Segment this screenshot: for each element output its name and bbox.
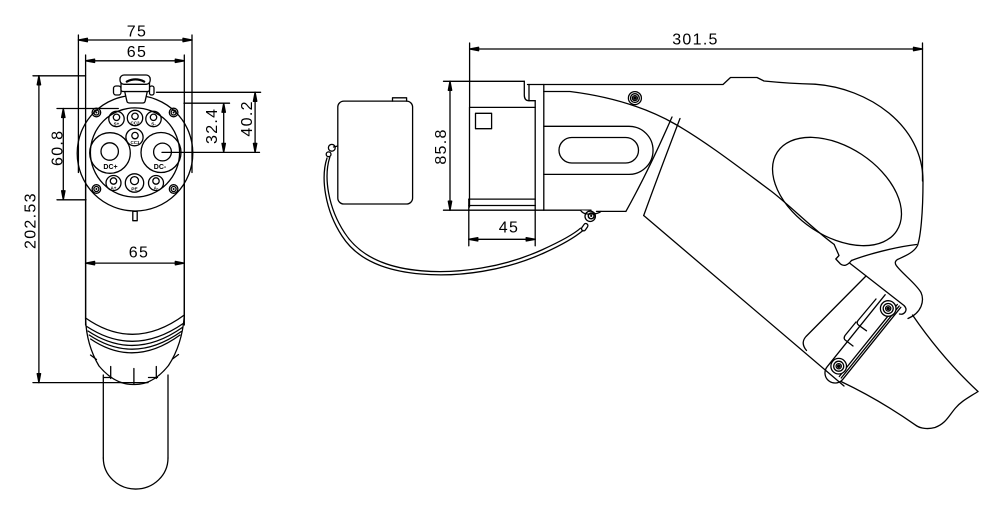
svg-text:32.4: 32.4 bbox=[204, 108, 221, 144]
svg-text:S-: S- bbox=[151, 122, 156, 127]
svg-text:PE: PE bbox=[131, 186, 138, 192]
svg-text:65: 65 bbox=[127, 44, 147, 61]
svg-text:60.8: 60.8 bbox=[50, 130, 67, 166]
svg-text:S+: S+ bbox=[114, 122, 120, 127]
svg-text:A-: A- bbox=[154, 185, 159, 190]
svg-text:CC2: CC2 bbox=[130, 121, 139, 126]
svg-text:40.2: 40.2 bbox=[239, 100, 256, 136]
svg-text:DC-: DC- bbox=[154, 164, 167, 171]
svg-text:75: 75 bbox=[127, 24, 147, 41]
svg-text:65: 65 bbox=[129, 245, 149, 262]
svg-text:45: 45 bbox=[499, 220, 519, 237]
svg-text:85.8: 85.8 bbox=[433, 128, 450, 164]
svg-text:DC+: DC+ bbox=[103, 164, 117, 171]
svg-text:202.53: 202.53 bbox=[23, 192, 40, 249]
svg-text:CC1: CC1 bbox=[130, 140, 139, 145]
svg-text:A+: A+ bbox=[111, 185, 117, 190]
svg-text:301.5: 301.5 bbox=[672, 32, 719, 49]
